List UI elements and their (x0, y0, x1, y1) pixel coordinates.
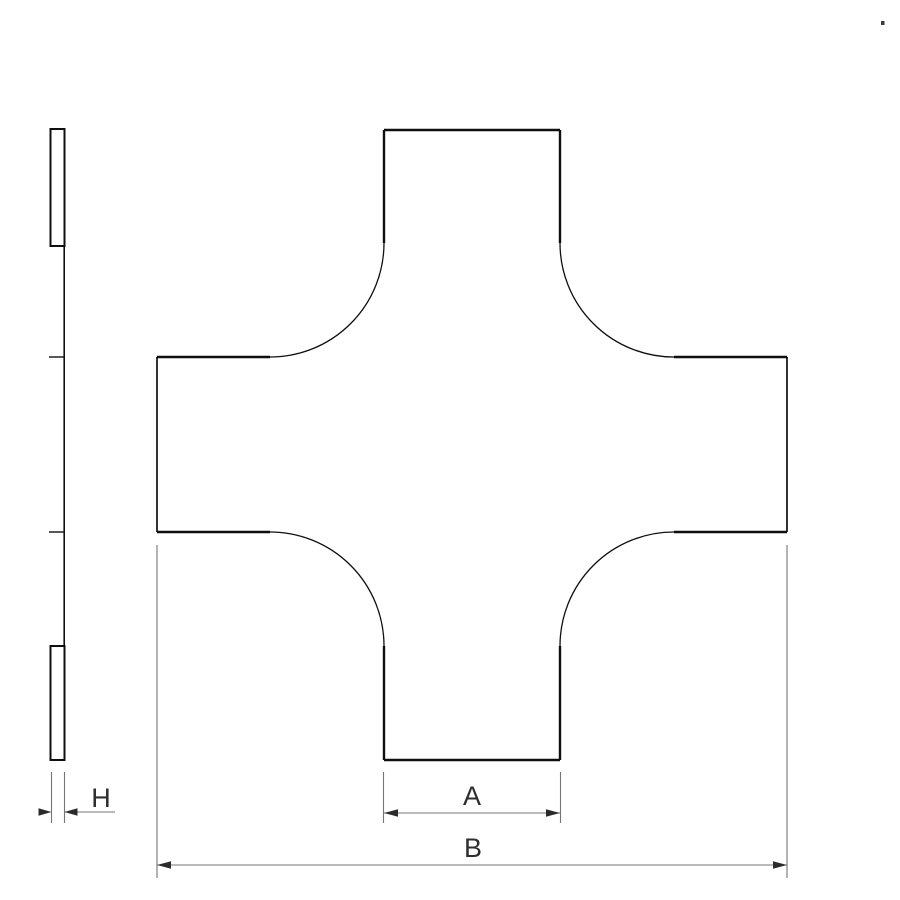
fillet-arc-top-right (560, 243, 674, 357)
technical-drawing: A B H (0, 0, 900, 900)
dim-a-label: A (463, 781, 481, 811)
side-view-bottom-flange (51, 646, 65, 760)
cross-wall-edges (157, 130, 787, 760)
dim-h-arrow-right-icon (65, 808, 78, 816)
dim-h-arrow-left-icon (39, 808, 52, 816)
dim-a-arrow-right-icon (546, 809, 560, 817)
stray-dot (881, 21, 885, 25)
cross-end-edges (157, 357, 787, 532)
side-view-profile (49, 129, 65, 760)
dimension-arrowheads (39, 808, 788, 869)
dimension-lines (52, 545, 788, 878)
drawing-canvas: A B H (0, 0, 900, 900)
dim-h-label: H (91, 783, 111, 813)
dim-b-label: B (464, 833, 482, 863)
dim-b-arrow-right-icon (773, 861, 787, 869)
front-view-cross (157, 130, 787, 760)
side-view-top-flange (51, 129, 65, 246)
dim-a-arrow-left-icon (384, 809, 398, 817)
dim-b-arrow-left-icon (157, 861, 171, 869)
fillet-arc-top-left (270, 243, 384, 357)
dimension-labels: A B H (91, 781, 482, 863)
cross-fillet-arcs (270, 243, 674, 646)
fillet-arc-bottom-left (270, 532, 384, 646)
fillet-arc-bottom-right (560, 532, 674, 646)
